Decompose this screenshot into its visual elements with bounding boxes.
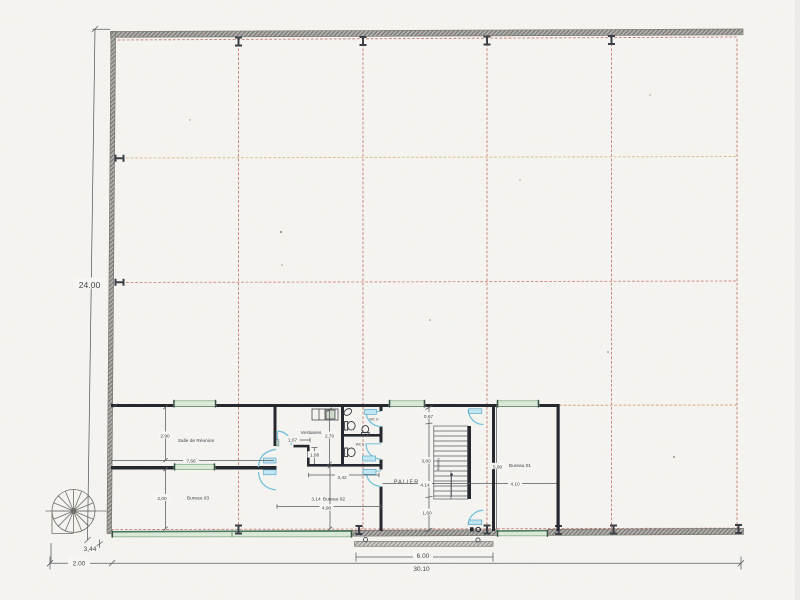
svg-text:6.00: 6.00 — [417, 553, 430, 560]
svg-text:1,88: 1,88 — [310, 453, 320, 459]
svg-text:4.14: 4.14 — [420, 483, 430, 489]
svg-text:2,00: 2,00 — [157, 496, 167, 502]
svg-text:1,60: 1,60 — [422, 510, 432, 516]
svg-text:4.10: 4.10 — [510, 482, 520, 488]
svg-text:2,70: 2,70 — [325, 434, 335, 440]
svg-text:4,90: 4,90 — [322, 506, 332, 512]
svg-text:2.90: 2.90 — [160, 434, 170, 440]
svg-text:Bureau 02: Bureau 02 — [323, 497, 345, 503]
svg-text:3,44: 3,44 — [84, 546, 97, 553]
svg-text:30.10: 30.10 — [413, 566, 430, 573]
svg-text:3,60: 3,60 — [421, 459, 431, 465]
svg-text:WC H: WC H — [369, 418, 379, 422]
svg-text:Salle de Réunion: Salle de Réunion — [178, 438, 215, 444]
svg-text:7,66: 7,66 — [186, 459, 196, 465]
svg-text:WC F: WC F — [356, 443, 365, 447]
svg-text:Montée: Montée — [437, 458, 441, 471]
svg-text:1,67: 1,67 — [288, 438, 298, 444]
svg-text:2.00: 2.00 — [73, 561, 86, 568]
svg-text:3.14: 3.14 — [311, 497, 321, 503]
svg-text:PALIER: PALIER — [394, 479, 419, 485]
svg-text:3,42: 3,42 — [337, 475, 347, 481]
svg-text:Vestiaires: Vestiaires — [301, 430, 322, 436]
svg-text:24.00: 24.00 — [79, 280, 101, 290]
svg-text:0,67: 0,67 — [424, 414, 434, 420]
svg-text:Bureau 01: Bureau 01 — [509, 463, 531, 469]
svg-text:Bureau 03: Bureau 03 — [187, 496, 209, 502]
svg-text:5,90: 5,90 — [493, 464, 503, 470]
